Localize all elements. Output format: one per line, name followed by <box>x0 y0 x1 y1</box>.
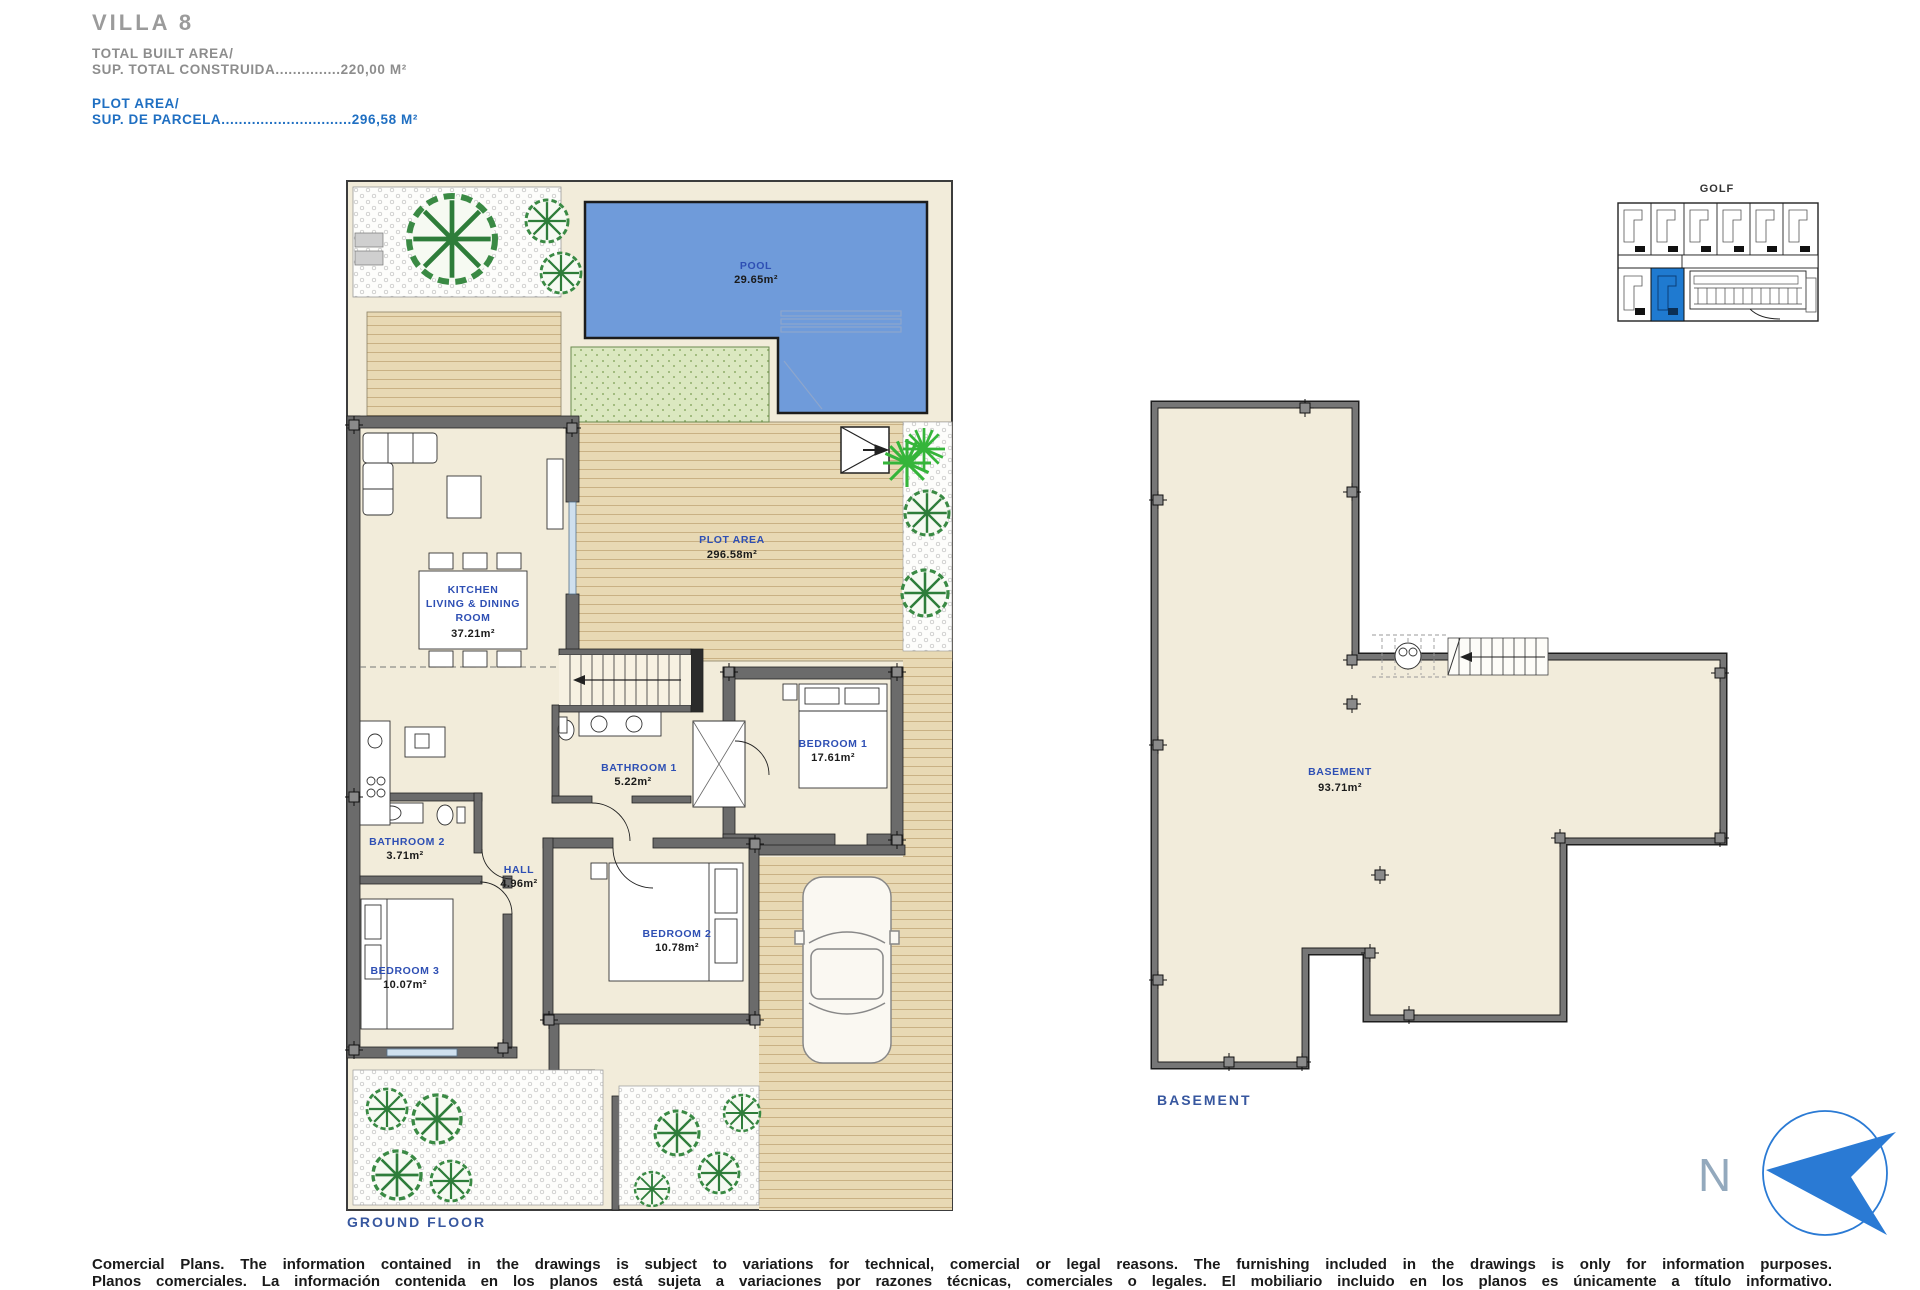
pool-area: 29.65m² <box>734 274 778 286</box>
grass-area <box>571 347 769 422</box>
bedroom1-area: 17.61m² <box>811 752 855 764</box>
built-area-line1: TOTAL BUILT AREA/ <box>92 46 407 62</box>
site-plan: GOLF <box>1618 183 1818 321</box>
basement-walls <box>1158 408 1720 1062</box>
bedroom1-furniture <box>783 684 887 788</box>
plot-area-block: PLOT AREA/ SUP. DE PARCELA..............… <box>92 96 418 128</box>
kitchen-label-2: LIVING & DINING <box>426 598 520 610</box>
site-plan-label: GOLF <box>1700 183 1735 195</box>
shower1 <box>693 721 745 807</box>
page-title: VILLA 8 <box>92 10 194 36</box>
bathroom1-area: 5.22m² <box>614 776 651 788</box>
basement-plan: BASEMENT 93.71m² <box>1149 399 1729 1071</box>
disclaimer-line2: Planos comerciales. La información conte… <box>92 1273 1832 1290</box>
disclaimer-line1: Comercial Plans. The information contain… <box>92 1256 1832 1273</box>
tv-bench <box>547 459 563 529</box>
coffee-table <box>447 476 481 518</box>
bedroom3-furniture <box>361 899 453 1029</box>
north-compass: N <box>1698 1111 1896 1235</box>
car-icon <box>795 877 899 1063</box>
bathroom2-area: 3.71m² <box>386 850 423 862</box>
bathroom2-label: BATHROOM 2 <box>369 836 445 848</box>
kitchen-label-1: KITCHEN <box>448 584 499 596</box>
ground-floor-plan: POOL 29.65m² PLOT AREA 296.58m² <box>345 181 952 1210</box>
hall-label: HALL <box>504 864 534 876</box>
bedroom3-label: BEDROOM 3 <box>371 965 440 977</box>
built-area-block: TOTAL BUILT AREA/ SUP. TOTAL CONSTRUIDA.… <box>92 46 407 78</box>
plot-area-label: PLOT AREA <box>699 534 765 546</box>
plot-area-value: 296.58m² <box>707 549 757 561</box>
basement-label: BASEMENT <box>1308 766 1372 778</box>
bedroom2-area: 10.78m² <box>655 942 699 954</box>
bedroom3-area: 10.07m² <box>383 979 427 991</box>
bedroom3-window <box>387 1049 457 1056</box>
plot-area-line1: PLOT AREA/ <box>92 96 418 112</box>
kitchen-area: 37.21m² <box>451 628 495 640</box>
disclaimer: Comercial Plans. The information contain… <box>92 1256 1832 1290</box>
ground-floor-caption: GROUND FLOOR <box>347 1214 486 1230</box>
basement-caption: BASEMENT <box>1157 1092 1252 1108</box>
basement-area: 93.71m² <box>1318 782 1362 794</box>
plot-area-line2: SUP. DE PARCELA.........................… <box>92 112 418 128</box>
deck-topleft <box>367 312 561 416</box>
bedroom1-label: BEDROOM 1 <box>799 738 868 750</box>
pool-hatch <box>841 427 889 473</box>
stairs <box>559 655 691 705</box>
kitchen-label-3: ROOM <box>455 612 490 624</box>
compass-n-label: N <box>1698 1149 1731 1201</box>
bedroom2-furniture <box>591 863 743 981</box>
boiler-icon <box>1395 643 1421 669</box>
living-window <box>569 502 576 594</box>
bedroom2-label: BEDROOM 2 <box>643 928 712 940</box>
built-area-line2: SUP. TOTAL CONSTRUIDA...............220,… <box>92 62 407 78</box>
bathroom1-label: BATHROOM 1 <box>601 762 677 774</box>
pool-label: POOL <box>740 260 772 272</box>
drawing-canvas: POOL 29.65m² PLOT AREA 296.58m² <box>0 0 1920 1280</box>
hall-area: 4.96m² <box>500 878 537 890</box>
